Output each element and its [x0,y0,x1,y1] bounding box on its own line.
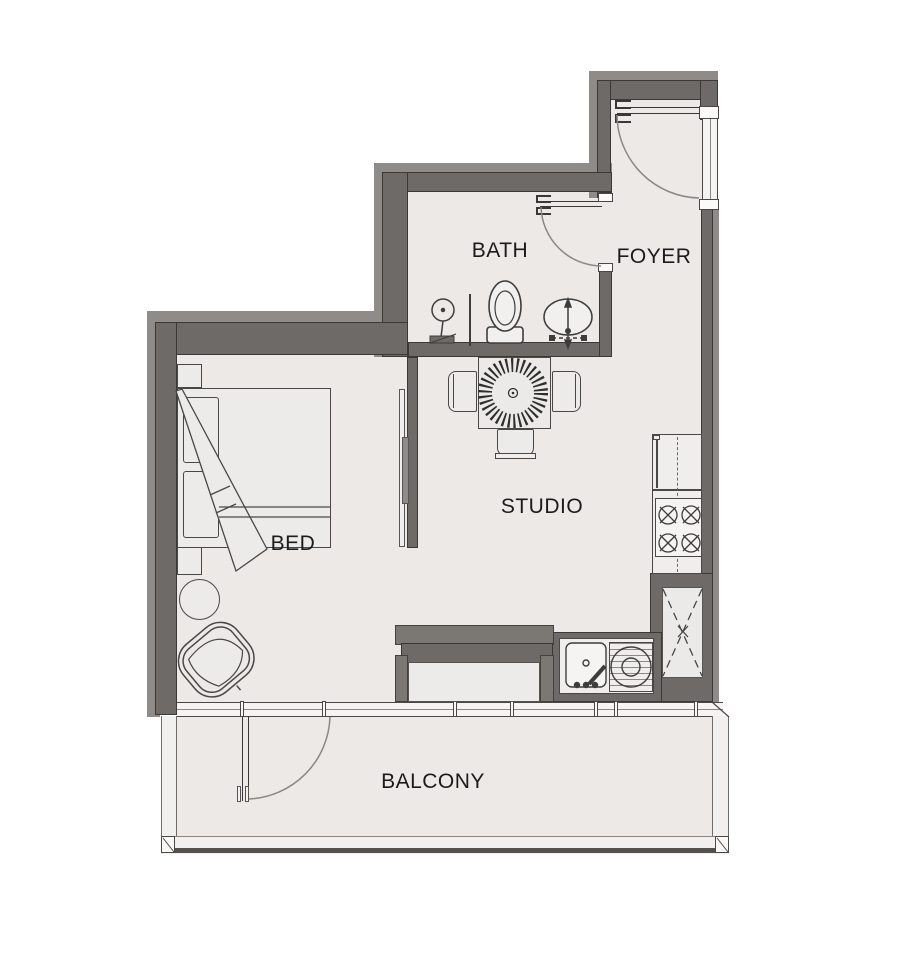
foyer-window-jamb-top [699,106,719,119]
dining-chair-left [448,371,477,412]
bath-door-jamb-bottom [598,263,613,272]
floor-plan: BATH FOYER STUDIO BED BALCONY [0,0,904,962]
window-mullion [240,701,244,717]
wall-bath-top [382,172,612,192]
dining-table [478,357,551,429]
service-shaft [662,587,703,678]
drainboard [609,642,653,692]
nightstand-bottom [177,547,202,575]
counter-inner [408,662,540,702]
balcony-door-handle-icon [245,786,249,802]
balcony-corner-left [161,836,175,853]
room-label-balcony: BALCONY [381,770,485,794]
counter-top-band [395,625,554,645]
foyer-window-jamb-bottom [699,199,719,210]
window-mullion [594,701,598,717]
dining-chair-right [552,371,581,412]
balcony-corner-right [715,836,729,853]
window-mullion [694,701,698,717]
window-mullion [510,701,514,717]
bath-door-hinge-icon [536,195,551,203]
foyer-window [702,119,718,202]
room-label-bath: BATH [472,239,528,263]
chair-base-line [495,453,536,459]
sliding-door-panel-dark [402,437,409,504]
bath-door-jamb-top [598,193,613,202]
room-label-studio: STUDIO [501,495,583,519]
bath-floor [408,192,600,344]
refrigerator-handle-icon [653,435,660,440]
pillow [183,397,219,463]
foyer-window-glass-line [710,119,711,202]
counter-second-band [401,643,553,663]
wall-bed-top [155,322,408,355]
entrance-door-hinge-icon [615,100,631,109]
room-label-foyer: FOYER [617,245,692,269]
entrance-door-hinge-icon [615,114,631,123]
door-opening-floor [599,200,612,270]
window-mullion [453,701,457,717]
outer-wall-right [713,203,719,702]
balcony-rail-bottom [161,836,729,854]
side-table [179,579,220,620]
pillow [183,471,219,538]
window-glass-line [177,709,723,710]
balcony-rail-right [712,716,729,841]
window-mullion [322,701,326,717]
balcony-rail-bottom-line [161,848,729,853]
counter-leg-right [540,655,554,702]
wall-left [155,322,177,715]
dining-chair-bottom [497,429,534,456]
stove [655,498,702,557]
chair-back-line [575,374,576,408]
balcony-door-handle-icon [237,786,241,802]
refrigerator-door-line [656,437,658,488]
room-label-bed: BED [271,532,316,556]
nightstand-top [177,364,202,388]
window-wall-bottom [177,702,723,717]
balcony-rail-left [161,716,177,841]
wall-bath-foyer-lower [599,270,612,357]
counter-leg-left [395,655,408,702]
chair-back-line [453,374,454,408]
window-mullion [614,701,618,717]
wall-bath-bottom [408,342,612,357]
foyer-floor [611,100,702,357]
bath-door-hinge-icon [536,207,551,215]
